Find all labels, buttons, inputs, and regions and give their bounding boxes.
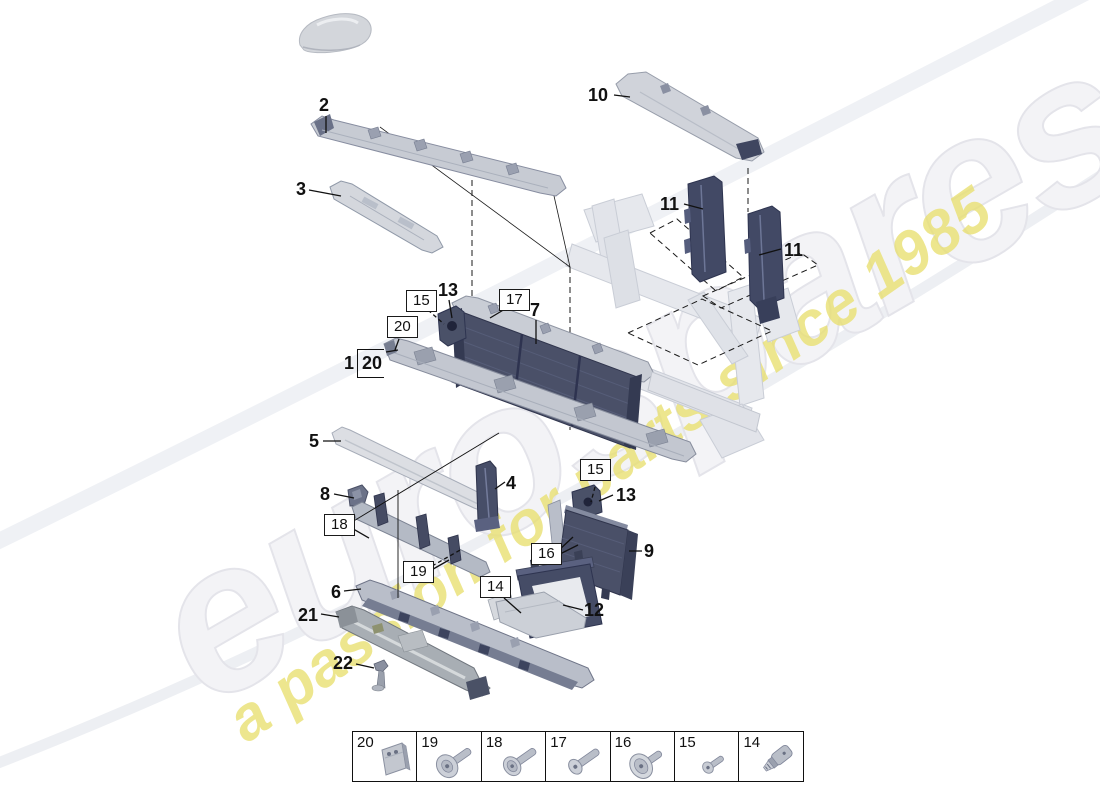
fastener-cell-18: 18 bbox=[481, 731, 547, 782]
callout-13-lower[interactable]: 13 bbox=[616, 486, 636, 504]
part-4-bracket bbox=[474, 461, 500, 532]
screw-pan-head-icon bbox=[561, 738, 609, 780]
callout-19-boxed[interactable]: 19 bbox=[403, 561, 434, 583]
bolt-small-icon bbox=[694, 738, 738, 780]
callout-11-right[interactable]: 11 bbox=[784, 241, 803, 259]
callout-8[interactable]: 8 bbox=[320, 485, 330, 503]
fastener-cell-14: 14 bbox=[738, 731, 804, 782]
callout-1: 1 bbox=[344, 353, 354, 374]
part-11-air-guide-left bbox=[684, 176, 726, 282]
callout-20-upper-boxed[interactable]: 20 bbox=[387, 316, 418, 338]
callout-6[interactable]: 6 bbox=[331, 583, 341, 601]
callout-18-boxed[interactable]: 18 bbox=[324, 514, 355, 536]
callout-1-20-group[interactable]: 1 20 bbox=[344, 349, 384, 378]
part-13-bracket-upper bbox=[438, 306, 466, 346]
callout-bracket: 20 bbox=[357, 349, 384, 378]
callout-12[interactable]: 12 bbox=[584, 601, 604, 619]
callout-22[interactable]: 22 bbox=[333, 654, 353, 672]
fastener-cell-20: 20 bbox=[352, 731, 418, 782]
fastener-cell-19: 19 bbox=[416, 731, 482, 782]
callout-16-boxed[interactable]: 16 bbox=[531, 543, 562, 565]
clip-plate-icon bbox=[372, 738, 416, 780]
callout-9[interactable]: 9 bbox=[644, 542, 654, 560]
callout-14-boxed[interactable]: 14 bbox=[480, 576, 511, 598]
part-8-bracket bbox=[348, 485, 368, 506]
callout-15-upper-boxed[interactable]: 15 bbox=[406, 290, 437, 312]
callout-5[interactable]: 5 bbox=[309, 432, 319, 450]
callout-17-boxed[interactable]: 17 bbox=[499, 289, 530, 311]
callout-4[interactable]: 4 bbox=[506, 474, 516, 492]
fastener-cell-17: 17 bbox=[545, 731, 611, 782]
screw-dish-washer-icon bbox=[626, 738, 674, 780]
part-3-support-strip bbox=[330, 181, 443, 253]
callout-3[interactable]: 3 bbox=[296, 180, 306, 198]
callout-11-left[interactable]: 11 bbox=[660, 195, 679, 213]
callout-7[interactable]: 7 bbox=[530, 301, 540, 319]
fastener-cell-15: 15 bbox=[674, 731, 740, 782]
callout-20-inline: 20 bbox=[362, 353, 382, 373]
screw-washer-icon bbox=[497, 738, 545, 780]
part-22-clip bbox=[372, 660, 388, 691]
screw-large-washer-icon bbox=[432, 738, 480, 780]
expansion-rivet-icon bbox=[754, 738, 802, 780]
parts-diagram-canvas: eurospares a passion for parts since 198… bbox=[0, 0, 1100, 800]
callout-10[interactable]: 10 bbox=[588, 86, 608, 104]
fastener-table: 20 19 18 bbox=[352, 731, 804, 782]
diagram-drawing bbox=[0, 0, 1100, 800]
callout-13-upper[interactable]: 13 bbox=[438, 281, 458, 299]
callout-15-lower-boxed[interactable]: 15 bbox=[580, 459, 611, 481]
callout-21[interactable]: 21 bbox=[298, 606, 318, 624]
callout-2[interactable]: 2 bbox=[319, 96, 329, 114]
fastener-cell-16: 16 bbox=[610, 731, 676, 782]
car-silhouette-icon bbox=[299, 14, 371, 53]
part-10-air-duct bbox=[616, 72, 764, 161]
